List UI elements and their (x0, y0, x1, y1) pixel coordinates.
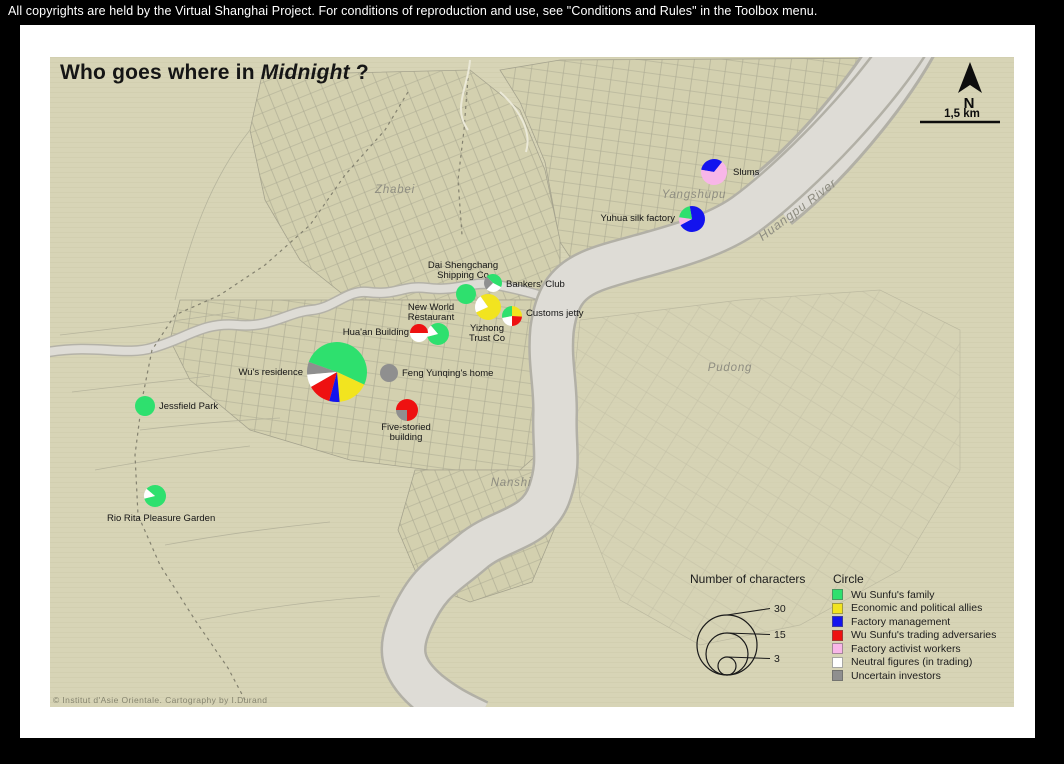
pie-label-rio-rita-pleasure-garden: Rio Rita Pleasure Garden (107, 513, 215, 524)
legend-label-neutral: Neutral figures (in trading) (851, 656, 972, 668)
pie-slice-uncertain (380, 364, 398, 382)
region-label-zhabei: Zhabei (374, 184, 415, 196)
pie-label-bankers-club: Bankers' Club (506, 279, 565, 290)
legend-size-title: Number of characters (690, 572, 805, 586)
pie-huaan-building: Hua'an Building (343, 324, 428, 342)
legend-label-factory_management: Factory management (851, 616, 950, 628)
pie-label-five-storied-building: Five-storiedbuilding (381, 422, 431, 443)
pie-label-feng-yunqings-home: Feng Yunqing's home (402, 368, 493, 379)
legend-swatch-neutral (832, 657, 843, 668)
pie-label-yuhua-silk-factory: Yuhua silk factory (601, 213, 676, 224)
pie-label-customs-jetty: Customs jetty (526, 308, 584, 319)
legend-swatch-uncertain (832, 670, 843, 681)
legend-swatch-allies (832, 603, 843, 614)
pie-label-jessfield-park: Jessfield Park (159, 401, 218, 412)
screenshot-frame: All copyrights are held by the Virtual S… (0, 0, 1064, 764)
size-value-15: 15 (774, 629, 786, 641)
pie-yuhua-silk-factory: Yuhua silk factory (601, 206, 705, 232)
legend-categories-title: Circle (833, 572, 864, 586)
pie-slice-adversaries (410, 324, 428, 333)
legend-item-allies: Economic and political allies (832, 602, 996, 616)
pie-five-storied-building: Five-storiedbuilding (381, 399, 431, 443)
pie-slice-wu_family (679, 206, 692, 219)
legend-label-allies: Economic and political allies (851, 602, 982, 614)
pie-label-new-world-restaurant: New WorldRestaurant (408, 302, 455, 323)
pie-feng-yunqings-home: Feng Yunqing's home (380, 364, 493, 382)
legend-swatch-adversaries (832, 630, 843, 641)
title-prefix: Who goes where in (60, 61, 261, 84)
region-label-nanshi: Nanshi (491, 477, 532, 489)
size-value-30: 30 (774, 603, 786, 615)
pie-rio-rita-pleasure-garden: Rio Rita Pleasure Garden (107, 485, 215, 524)
pie-jessfield-park: Jessfield Park (135, 396, 218, 416)
size-circle-30 (697, 615, 757, 675)
pie-slice-neutral (410, 333, 428, 342)
legend-item-neutral: Neutral figures (in trading) (832, 656, 996, 670)
region-label-yangshupu: Yangshupu (662, 189, 727, 201)
title-suffix: ? (350, 61, 369, 84)
legend-label-adversaries: Wu Sunfu's trading adversaries (851, 629, 996, 641)
legend-swatch-wu_family (832, 589, 843, 600)
legend-item-wu_family: Wu Sunfu's family (832, 588, 996, 602)
pie-slice-wu_family (502, 306, 512, 318)
region-label-pudong: Pudong (708, 362, 752, 374)
scale-label: 1,5 km (944, 108, 980, 120)
region-label-huangpu-river: Huangpu River (756, 176, 839, 244)
legend-item-factory_management: Factory management (832, 615, 996, 629)
size-circle-15 (706, 633, 748, 675)
legend-item-factory_activists: Factory activist workers (832, 642, 996, 656)
credit-line: © Institut d'Asie Orientale. Cartography… (53, 695, 267, 705)
legend-label-wu_family: Wu Sunfu's family (851, 589, 935, 601)
pie-label-yizhong-trust-co: YizhongTrust Co (469, 323, 505, 344)
size-value-3: 3 (774, 653, 780, 665)
pie-slice-wu_family (135, 396, 155, 416)
legend-swatch-factory_management (832, 616, 843, 627)
pie-label-slums: Slums (733, 167, 760, 178)
pie-slice-allies (512, 306, 522, 317)
pie-customs-jetty: Customs jetty (502, 306, 584, 326)
pie-wus-residence: Wu's residence (239, 342, 367, 402)
legend-item-uncertain: Uncertain investors (832, 669, 996, 683)
legend-swatch-factory_activists (832, 643, 843, 654)
pie-slice-wu_family (456, 284, 476, 304)
page-title: Who goes where in Midnight ? (60, 61, 369, 85)
legend-label-uncertain: Uncertain investors (851, 670, 941, 682)
size-circle-3 (718, 657, 736, 675)
pie-slice-adversaries (512, 316, 522, 326)
pie-bankers-club: Bankers' Club (484, 274, 565, 292)
title-emphasis: Midnight (261, 61, 350, 84)
pie-label-huaan-building: Hua'an Building (343, 327, 409, 338)
pie-slice-uncertain (396, 410, 407, 421)
legend-categories: Wu Sunfu's familyEconomic and political … (832, 588, 996, 683)
legend-item-adversaries: Wu Sunfu's trading adversaries (832, 629, 996, 643)
pie-label-wus-residence: Wu's residence (239, 367, 303, 378)
size-leader-30 (727, 609, 770, 616)
pie-slums: Slums (701, 159, 760, 185)
pie-yizhong-trust-co: YizhongTrust Co (469, 294, 505, 344)
size-leader-3 (727, 657, 770, 659)
legend-label-factory_activists: Factory activist workers (851, 643, 961, 655)
